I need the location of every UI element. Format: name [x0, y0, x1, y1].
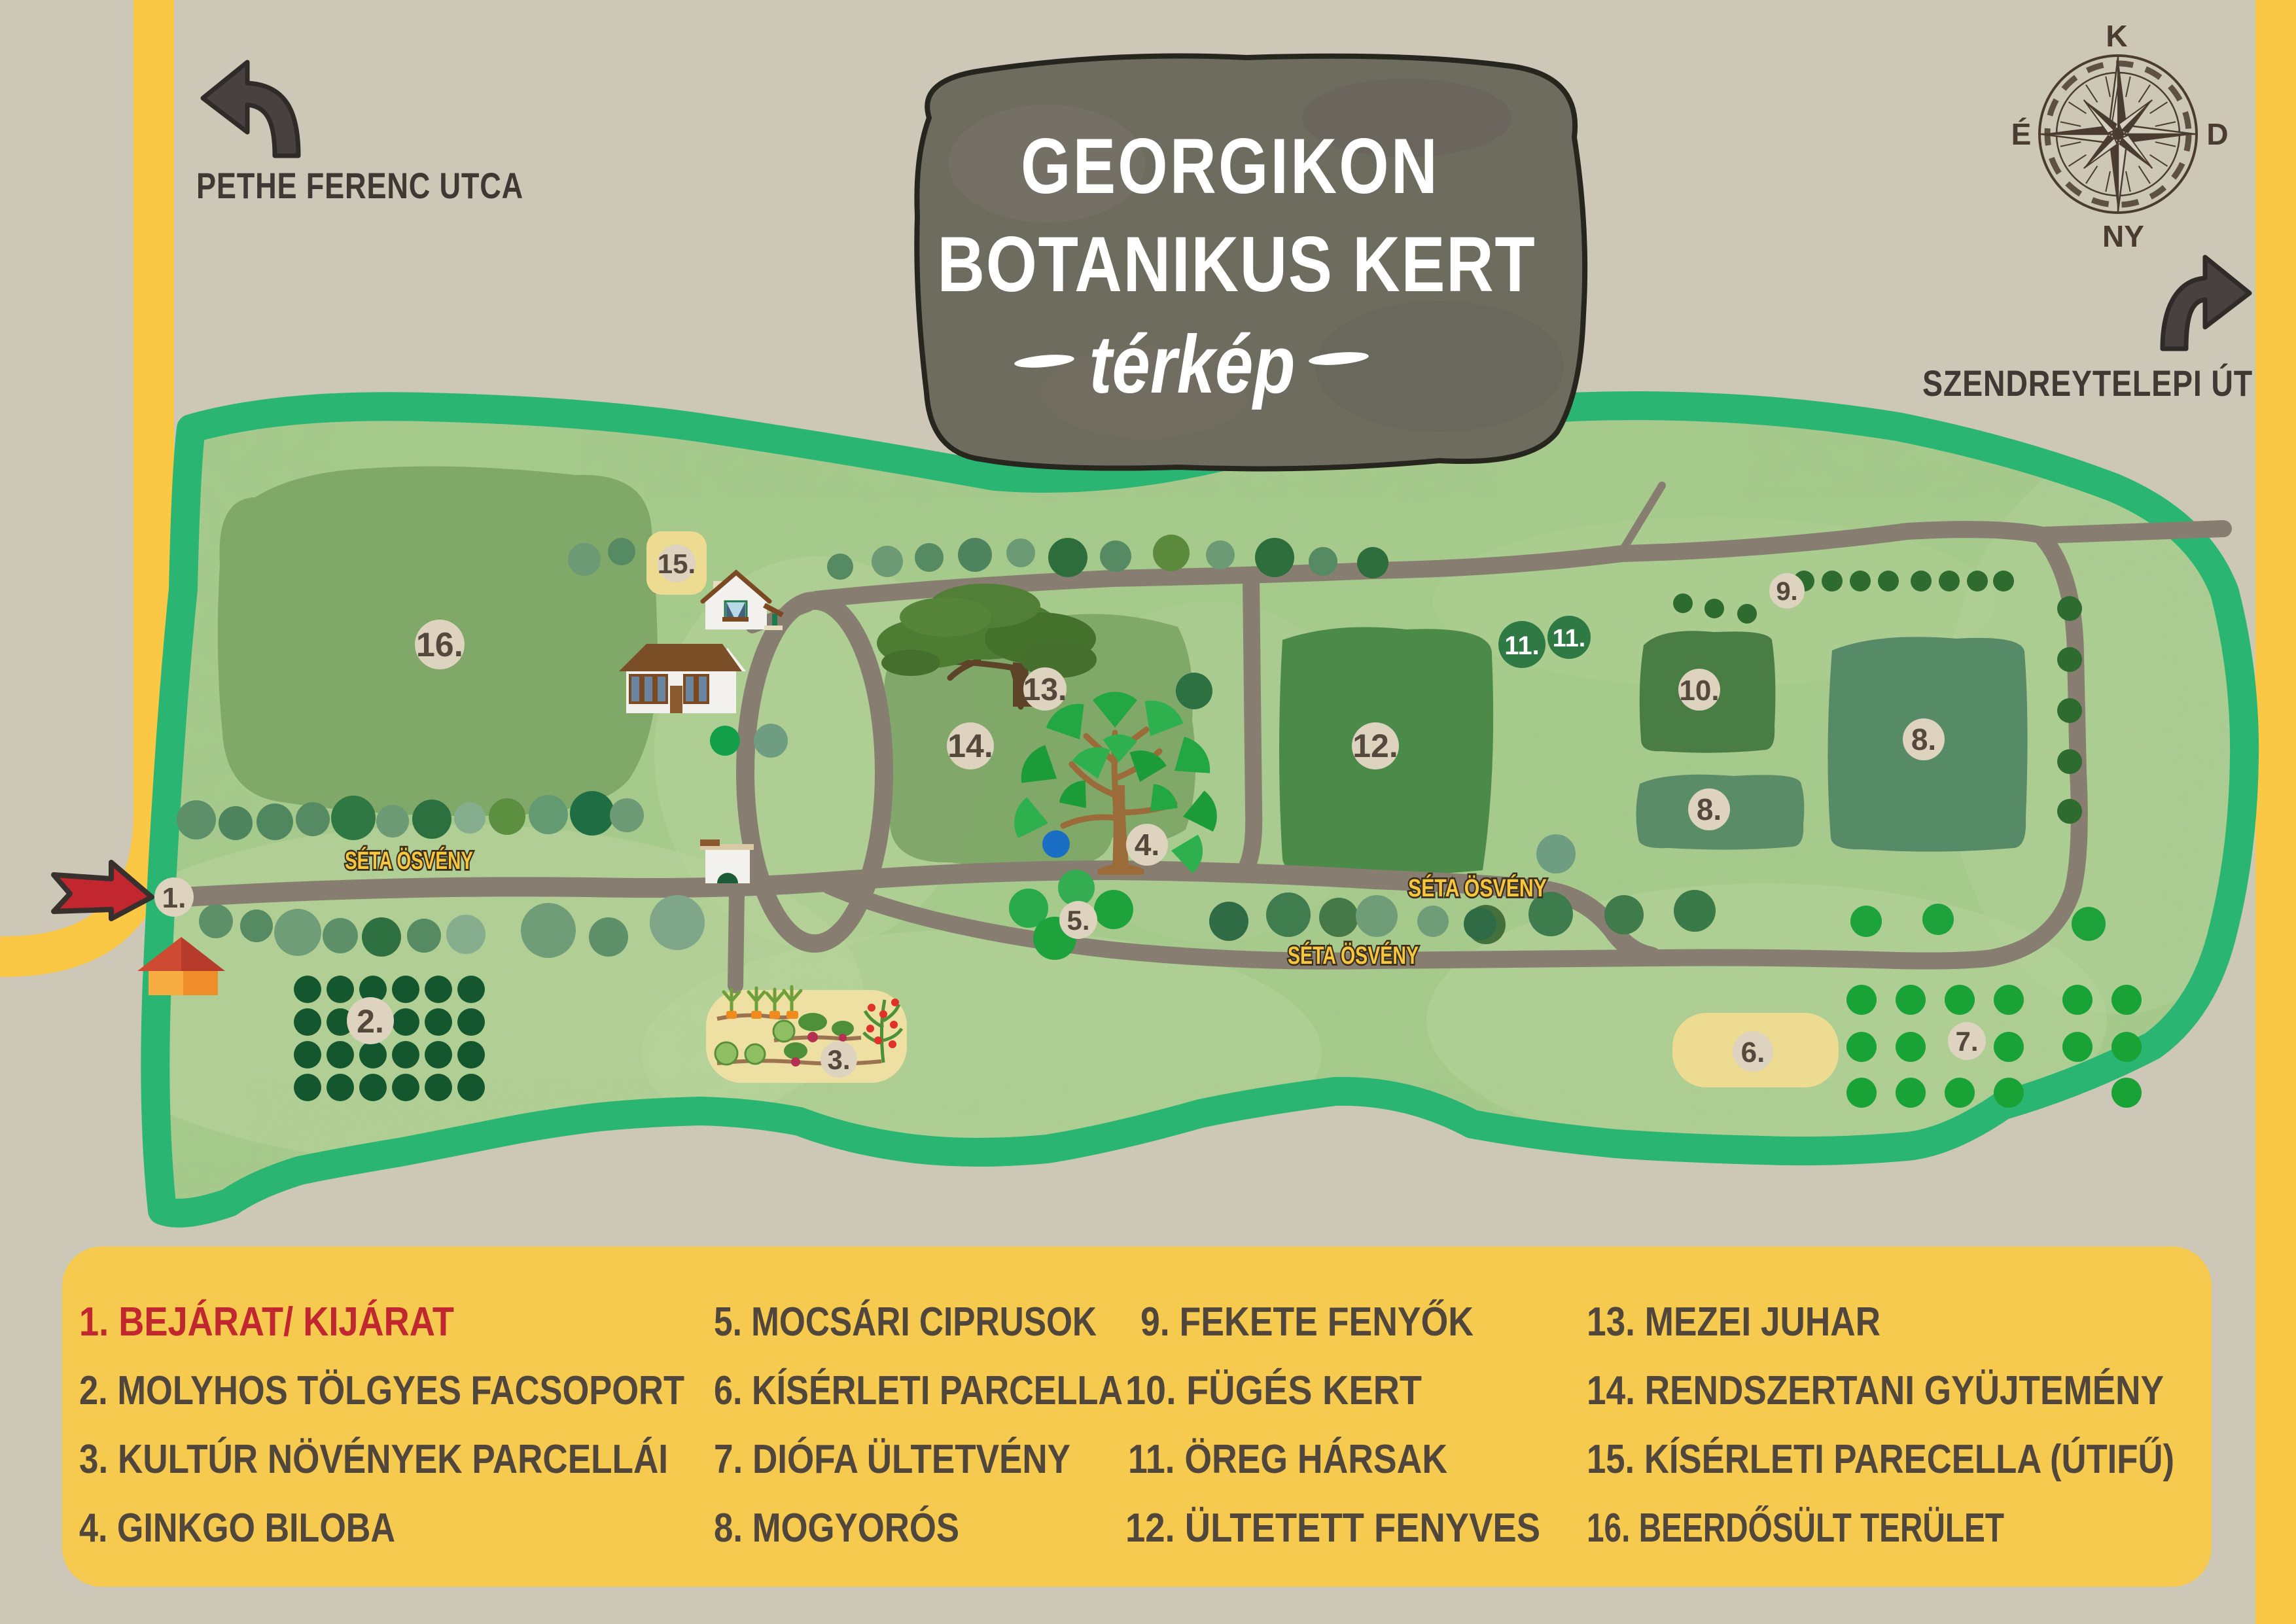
svg-text:10.: 10.: [1679, 675, 1719, 707]
svg-text:15. KÍSÉRLETI PARECELLA (ÚTIFŰ: 15. KÍSÉRLETI PARECELLA (ÚTIFŰ): [1587, 1437, 2174, 1482]
svg-text:7.: 7.: [1955, 1026, 1978, 1057]
svg-text:1.: 1.: [162, 882, 186, 914]
svg-text:8.: 8.: [1911, 722, 1936, 756]
svg-text:13. MEZEI JUHAR: 13. MEZEI JUHAR: [1587, 1299, 1881, 1345]
svg-text:SÉTA ÖSVÉNY: SÉTA ÖSVÉNY: [345, 846, 473, 875]
svg-text:térkép: térkép: [1089, 319, 1296, 410]
svg-text:SÉTA ÖSVÉNY: SÉTA ÖSVÉNY: [1288, 941, 1419, 970]
svg-text:16.: 16.: [416, 626, 463, 664]
svg-text:13.: 13.: [1023, 673, 1067, 707]
svg-text:6.: 6.: [1741, 1036, 1765, 1068]
svg-text:9.: 9.: [1776, 577, 1797, 606]
svg-text:É: É: [2011, 117, 2032, 151]
svg-text:14. RENDSZERTANI GYÜJTEMÉNY: 14. RENDSZERTANI GYÜJTEMÉNY: [1587, 1368, 2164, 1413]
svg-text:SÉTA ÖSVÉNY: SÉTA ÖSVÉNY: [1408, 874, 1547, 902]
svg-text:BOTANIKUS KERT: BOTANIKUS KERT: [938, 221, 1536, 308]
svg-text:16. BEERDŐSÜLT TERÜLET: 16. BEERDŐSÜLT TERÜLET: [1587, 1506, 2004, 1551]
svg-text:12. ÜLTETETT FENYVES: 12. ÜLTETETT FENYVES: [1125, 1506, 1540, 1551]
svg-text:10. FÜGÉS KERT: 10. FÜGÉS KERT: [1125, 1368, 1422, 1413]
svg-text:GEORGIKON: GEORGIKON: [1021, 122, 1439, 210]
svg-text:1. BEJÁRAT/ KIJÁRAT: 1. BEJÁRAT/ KIJÁRAT: [79, 1299, 454, 1345]
svg-text:8. MOGYORÓS: 8. MOGYORÓS: [714, 1506, 959, 1551]
svg-text:6. KÍSÉRLETI PARCELLA: 6. KÍSÉRLETI PARCELLA: [714, 1368, 1123, 1413]
svg-text:3.: 3.: [827, 1044, 850, 1075]
svg-text:12.: 12.: [1352, 728, 1398, 764]
svg-text:8.: 8.: [1697, 792, 1722, 826]
svg-text:2.: 2.: [357, 1003, 384, 1040]
svg-text:SZENDREYTELEPI ÚT: SZENDREYTELEPI ÚT: [1922, 362, 2253, 404]
svg-text:4. GINKGO BILOBA: 4. GINKGO BILOBA: [79, 1506, 395, 1551]
svg-text:D: D: [2206, 117, 2228, 151]
svg-text:9. FEKETE FENYŐK: 9. FEKETE FENYŐK: [1140, 1299, 1474, 1345]
svg-text:4.: 4.: [1135, 828, 1159, 862]
svg-text:15.: 15.: [658, 548, 696, 579]
svg-text:NY: NY: [2102, 219, 2144, 253]
svg-text:7. DIÓFA ÜLTETVÉNY: 7. DIÓFA ÜLTETVÉNY: [714, 1437, 1070, 1482]
svg-text:5. MOCSÁRI CIPRUSOK: 5. MOCSÁRI CIPRUSOK: [714, 1299, 1097, 1345]
svg-text:11.: 11.: [1553, 625, 1586, 652]
svg-text:5.: 5.: [1067, 905, 1089, 936]
svg-text:11. ÖREG HÁRSAK: 11. ÖREG HÁRSAK: [1128, 1437, 1447, 1482]
svg-text:11.: 11.: [1504, 631, 1539, 660]
svg-text:3. KULTÚR NÖVÉNYEK PARCELLÁI: 3. KULTÚR NÖVÉNYEK PARCELLÁI: [79, 1437, 668, 1482]
svg-text:2. MOLYHOS TÖLGYES FACSOPORT: 2. MOLYHOS TÖLGYES FACSOPORT: [79, 1368, 684, 1413]
svg-text:PETHE FERENC UTCA: PETHE FERENC UTCA: [196, 165, 523, 206]
svg-text:K: K: [2106, 19, 2127, 53]
svg-text:14.: 14.: [947, 728, 993, 764]
